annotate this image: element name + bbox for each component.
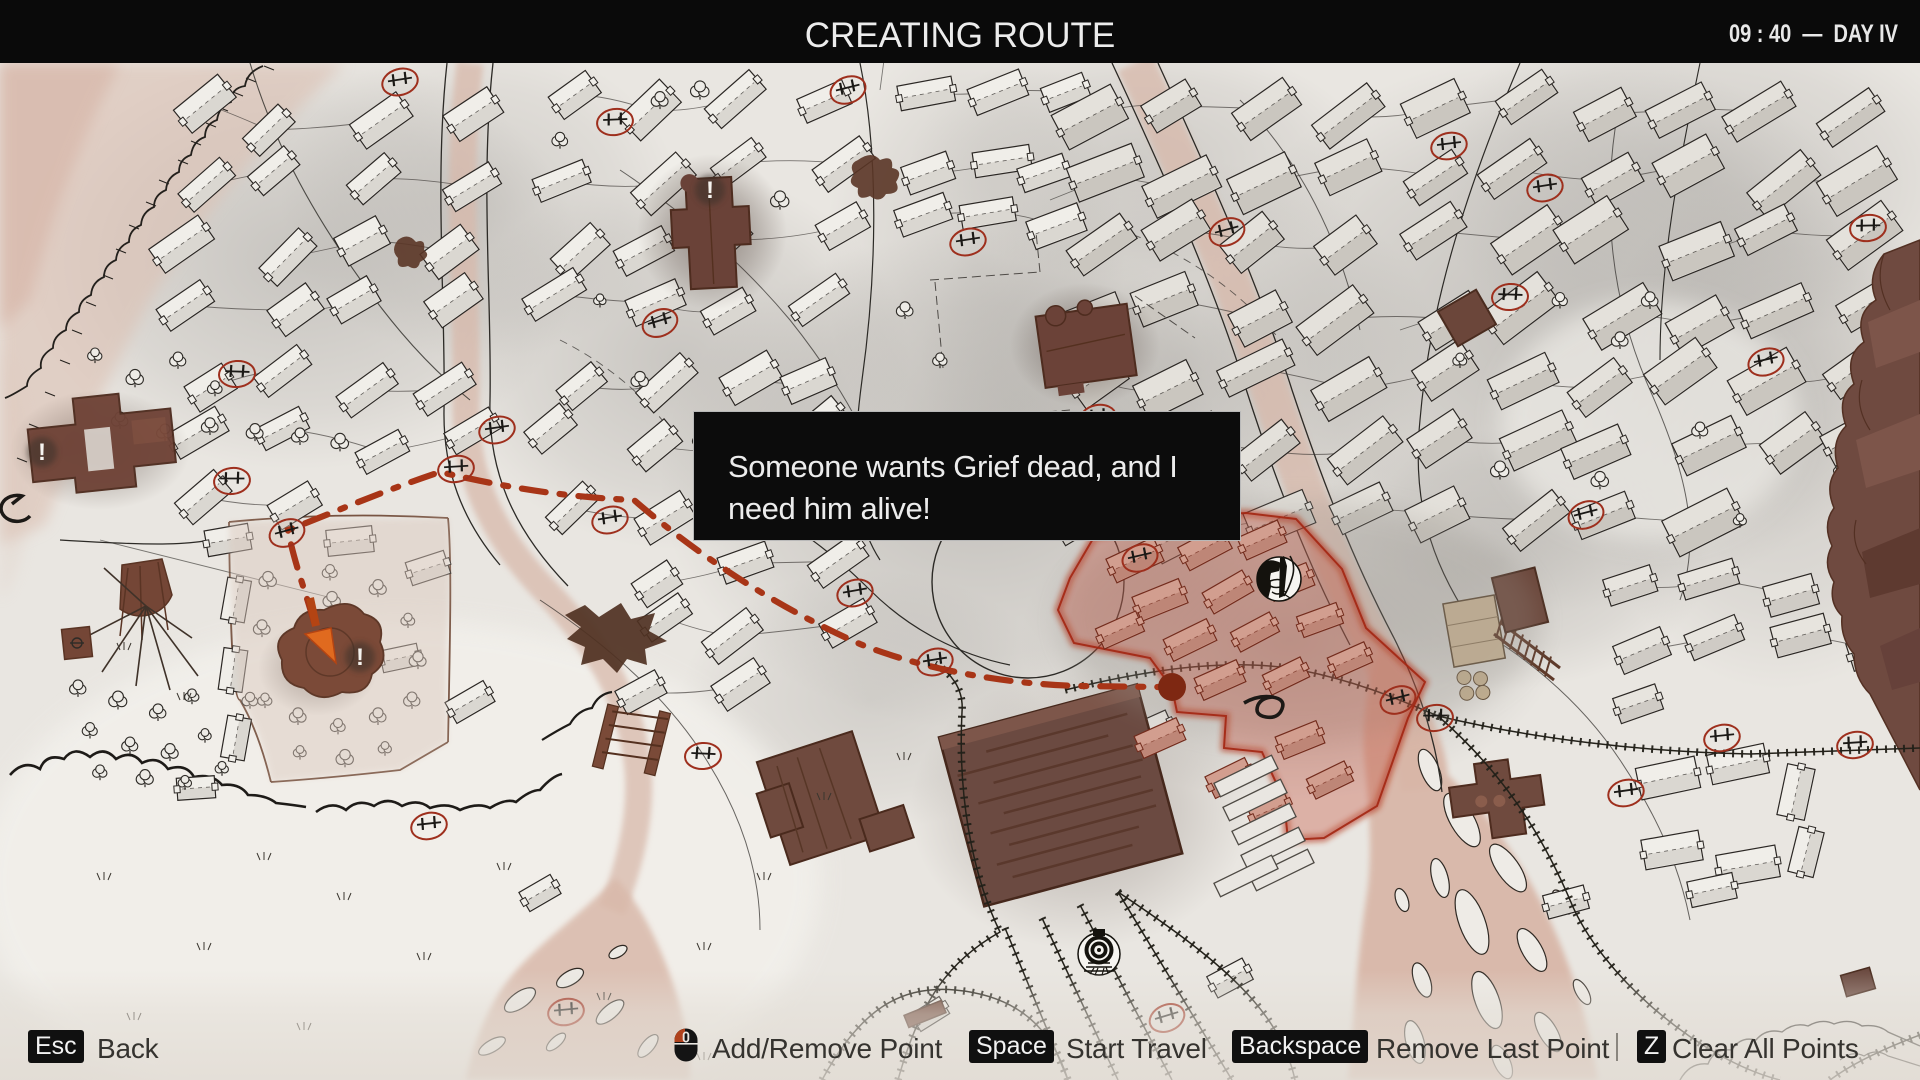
svg-text:!: ! [356,644,364,671]
svg-text:!: ! [706,177,714,204]
svg-text:!: ! [38,439,46,466]
